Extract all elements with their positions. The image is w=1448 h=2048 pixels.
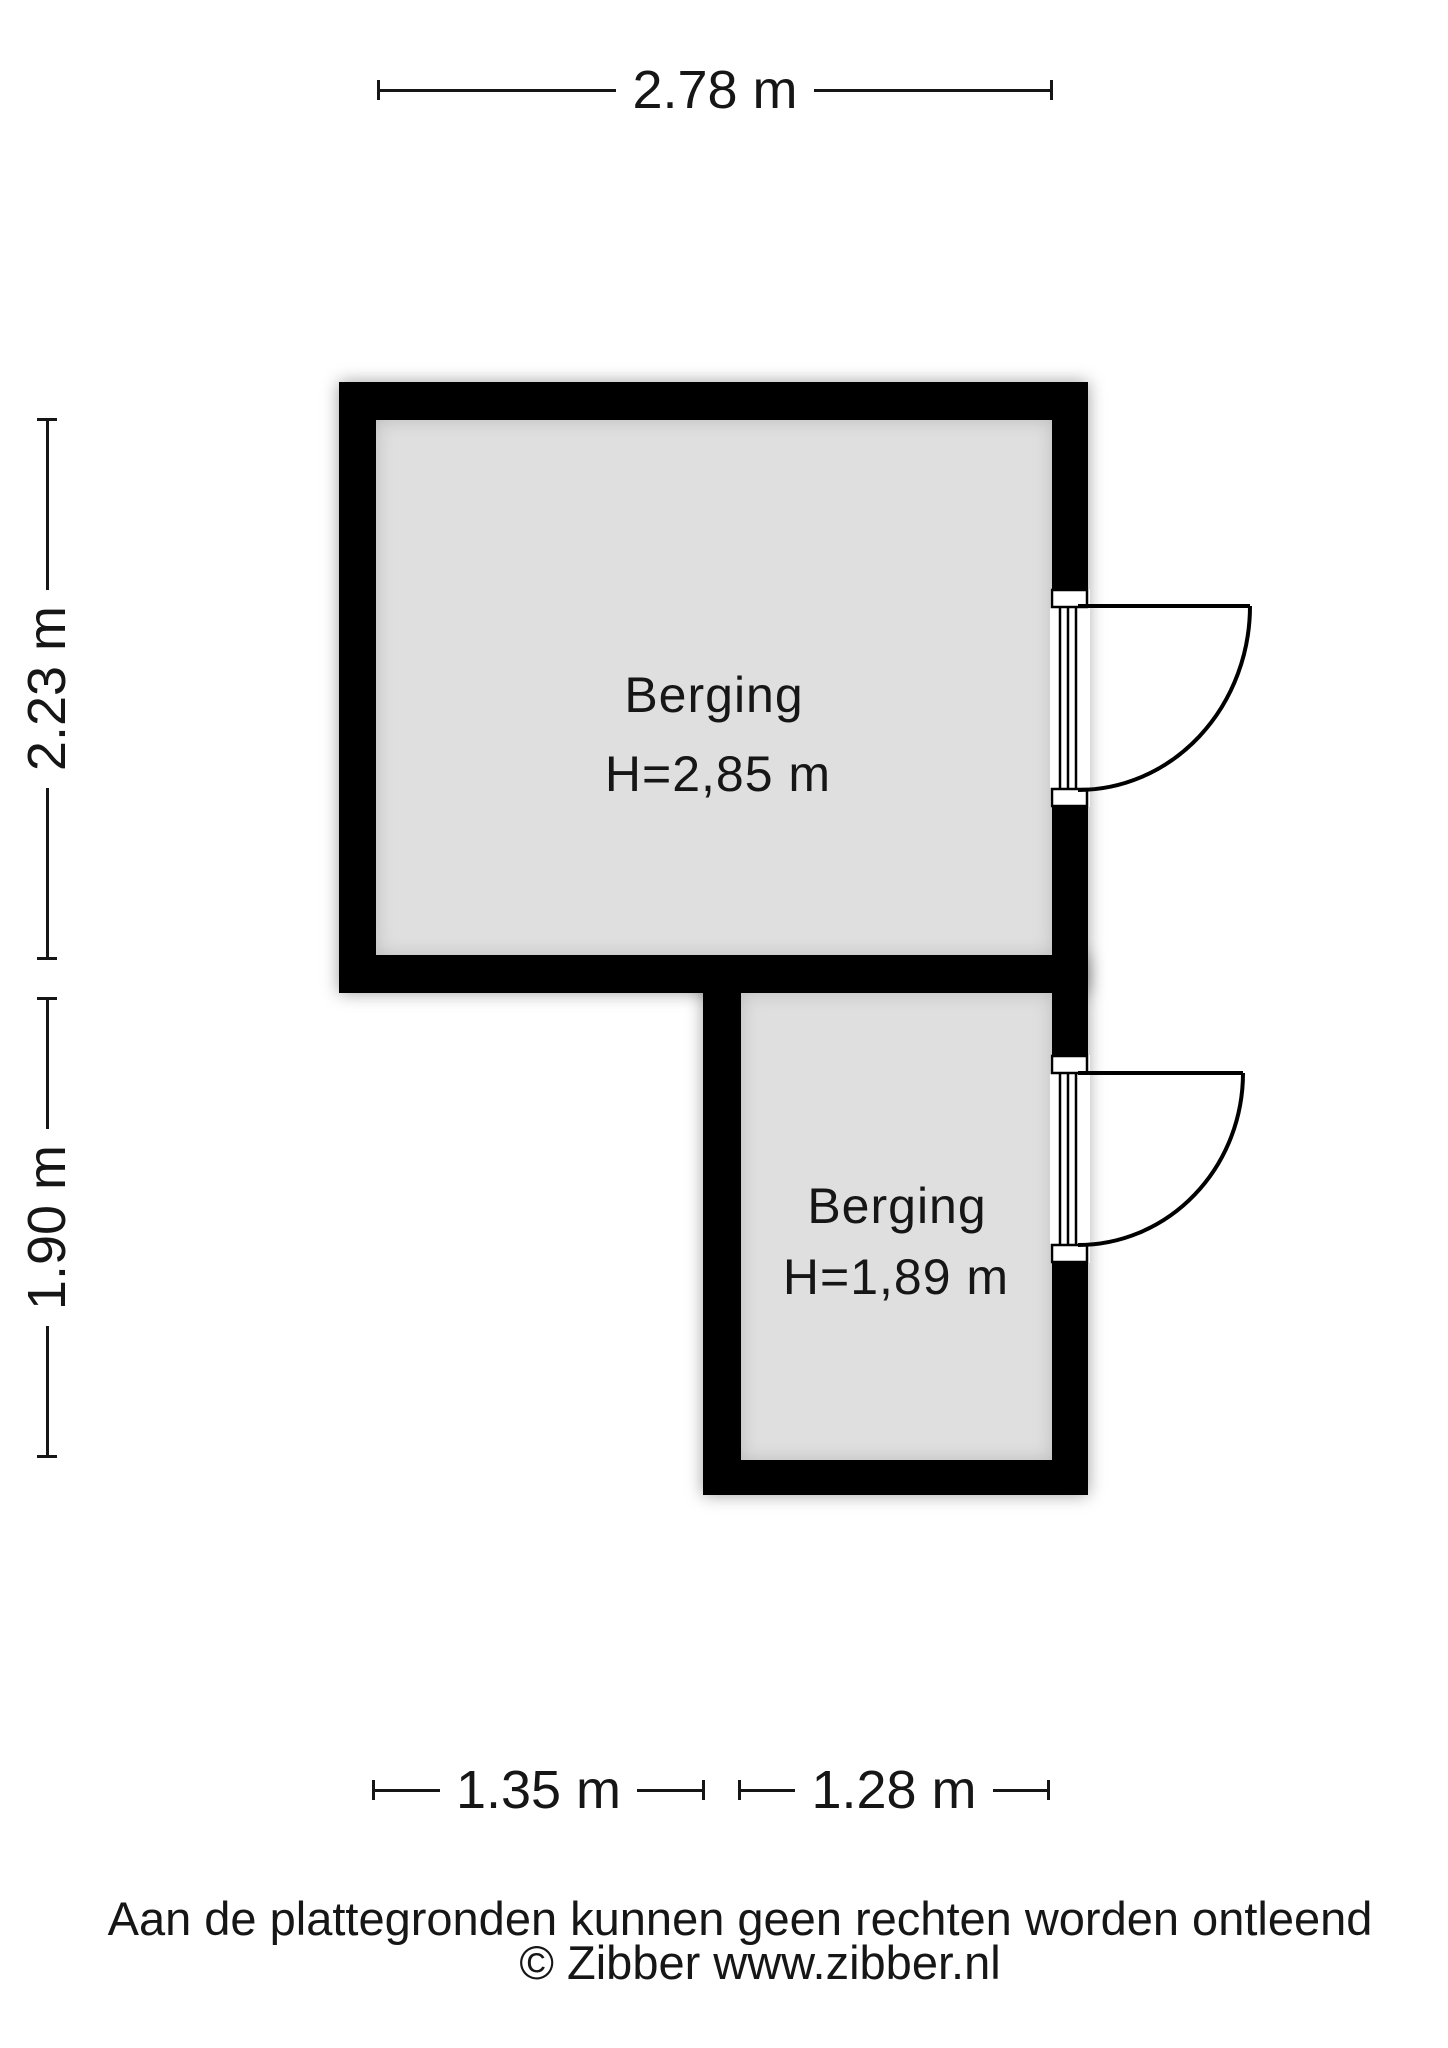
upper-room-name: Berging — [624, 666, 803, 724]
upper-door-opening — [1050, 589, 1090, 807]
dimension-line — [637, 1789, 702, 1792]
lower-room-height: H=1,89 m — [783, 1248, 1009, 1306]
dimension-line — [993, 1789, 1047, 1792]
dimension-tick — [702, 1780, 705, 1800]
lower-room-name: Berging — [807, 1177, 986, 1235]
dimension-label-bottom-right: 1.28 m — [795, 1759, 992, 1821]
dimension-line — [814, 89, 1050, 92]
dimension-top: 2.78 m — [377, 68, 1053, 112]
dimension-label-bottom-left: 1.35 m — [440, 1759, 637, 1821]
dimension-line — [380, 89, 616, 92]
dimension-left-upper: 2.23 m — [25, 418, 69, 960]
dimension-tick — [1050, 80, 1053, 100]
floorplan-canvas: 2.78 m 2.23 m 1.90 m — [0, 0, 1448, 2048]
dimension-tick — [1047, 1780, 1050, 1800]
dimension-tick — [37, 1455, 57, 1458]
dimension-line — [741, 1789, 795, 1792]
dimension-tick — [37, 957, 57, 960]
dimension-label-left-lower: 1.90 m — [16, 1129, 78, 1326]
dimension-line — [375, 1789, 440, 1792]
disclaimer-text: Aan de plattegronden kunnen geen rechten… — [108, 1895, 1373, 1942]
dimension-left-lower: 1.90 m — [25, 997, 69, 1458]
dimension-line — [46, 421, 49, 590]
dimension-bottom-right: 1.28 m — [738, 1768, 1050, 1812]
upper-room-height: H=2,85 m — [605, 745, 831, 803]
dimension-line — [46, 1326, 49, 1455]
copyright-text: © Zibber www.zibber.nl — [519, 1939, 1000, 1986]
dimension-line — [46, 1000, 49, 1129]
lower-door-opening — [1050, 1055, 1090, 1263]
dimension-bottom-left: 1.35 m — [372, 1768, 705, 1812]
dimension-line — [46, 788, 49, 957]
dimension-label-top: 2.78 m — [616, 59, 813, 121]
dimension-label-left-upper: 2.23 m — [16, 590, 78, 787]
